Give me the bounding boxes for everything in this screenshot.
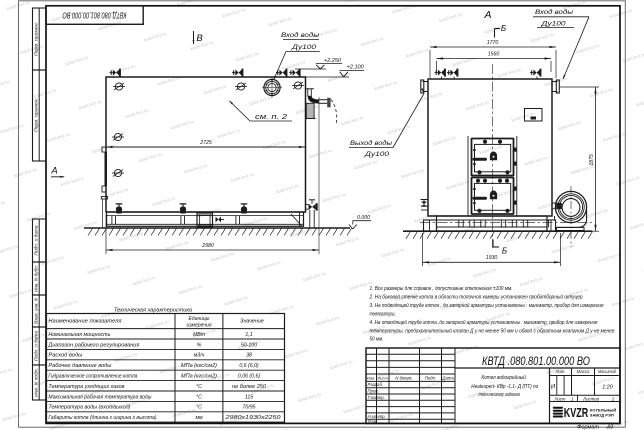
- svg-text:Подп. и дата: Подп. и дата: [33, 225, 38, 256]
- svg-text:Дата: Дата: [442, 376, 455, 381]
- svg-text:Масштаб: Масштаб: [598, 369, 617, 374]
- svg-text:МПа (кгс/см2): МПа (кгс/см2): [181, 374, 217, 380]
- svg-text:N докум.: N докум.: [395, 376, 412, 381]
- svg-text:Единицы: Единицы: [189, 316, 210, 322]
- svg-text:2980х1930х2250: 2980х1930х2250: [224, 415, 281, 421]
- svg-text:4. На отводящей трубе котла ,: 4. На отводящей трубе котла ,до запорной…: [370, 319, 598, 326]
- svg-text:+2.100: +2.100: [347, 65, 364, 71]
- svg-text:1,1: 1,1: [245, 332, 252, 338]
- svg-text:Температура воды (вход/выход): Температура воды (вход/выход): [48, 405, 130, 411]
- svg-text:1560: 1560: [488, 51, 500, 57]
- svg-text:0,6 (6,0): 0,6 (6,0): [239, 363, 259, 369]
- svg-text:см. п. 2: см. п. 2: [255, 114, 287, 121]
- svg-text:А3: А3: [606, 425, 613, 430]
- svg-text:Лист: Лист: [377, 376, 389, 381]
- svg-text:А: А: [50, 166, 57, 177]
- svg-text:1:20: 1:20: [602, 385, 613, 391]
- svg-text:А: А: [483, 9, 491, 21]
- svg-text:Вход воды: Вход воды: [535, 8, 573, 16]
- svg-text:не более 250: не более 250: [232, 384, 266, 390]
- svg-text:1. Все размеры для справок ,: 1. Все размеры для справок , допустимые …: [370, 286, 513, 292]
- svg-text:Значение: Значение: [240, 319, 264, 325]
- svg-text:Техническая характеристика: Техническая характеристика: [114, 307, 192, 313]
- svg-text:KVZR: KVZR: [564, 406, 589, 420]
- svg-text:В: В: [196, 33, 203, 44]
- svg-text:115: 115: [245, 394, 253, 400]
- svg-text:50-100: 50-100: [241, 342, 257, 348]
- svg-text:Масса: Масса: [577, 369, 590, 374]
- svg-text:Ду100: Ду100: [364, 151, 389, 158]
- svg-text:ЗАВОД РЭП: ЗАВОД РЭП: [590, 413, 614, 418]
- svg-text:Подп. и дата: Подп. и дата: [33, 330, 38, 361]
- svg-text:Выход воды: Выход воды: [350, 139, 392, 147]
- svg-text:°С: °С: [196, 384, 202, 390]
- svg-text:°С: °С: [196, 405, 202, 411]
- svg-text:Вход воды: Вход воды: [281, 31, 319, 39]
- svg-text:температуры.: температуры.: [370, 311, 396, 317]
- svg-text:КВТД.080.801.00.000 ВО: КВТД.080.801.00.000 ВО: [63, 11, 127, 20]
- svg-text:38: 38: [246, 353, 252, 359]
- svg-text:Расход воды: Расход воды: [48, 353, 82, 359]
- svg-text:м3/ч: м3/ч: [194, 353, 205, 359]
- svg-text:Наименование показателя: Наименование показателя: [48, 319, 121, 325]
- svg-text:Листов: Листов: [582, 396, 599, 401]
- svg-text:Б: Б: [501, 24, 506, 33]
- svg-text:Диапазон рабочего регулировани: Диапазон рабочего регулирования: [47, 342, 139, 348]
- svg-text:0,06 (0,6): 0,06 (0,6): [238, 374, 260, 380]
- svg-text:Изм.: Изм.: [367, 376, 376, 381]
- svg-text:Разраб.: Разраб.: [368, 382, 384, 387]
- svg-text:Лист: Лист: [553, 396, 565, 401]
- svg-text:Пров.: Пров.: [368, 389, 379, 394]
- svg-text:Формат: Формат: [577, 425, 599, 430]
- svg-text:Ду100: Ду100: [540, 21, 565, 28]
- svg-text:Рабочее давление воды: Рабочее давление воды: [48, 363, 111, 369]
- svg-text:1930: 1930: [486, 255, 498, 261]
- svg-text:+2.250: +2.250: [324, 58, 341, 64]
- svg-text:50 мм.: 50 мм.: [370, 337, 384, 343]
- svg-text:Инв. N дубл.: Инв. N дубл.: [33, 265, 38, 292]
- svg-text:Взам. инв. N: Взам. инв. N: [33, 297, 38, 324]
- svg-text:мм: мм: [195, 415, 203, 421]
- svg-text:2980: 2980: [201, 243, 214, 249]
- svg-text:Ду100: Ду100: [291, 44, 316, 51]
- svg-text:температуры, предохранительный: температуры, предохранительный клапан Д …: [370, 327, 615, 334]
- svg-text:70/95: 70/95: [243, 405, 256, 411]
- svg-text:Инв. N подл.: Инв. N подл.: [33, 368, 38, 397]
- svg-text:Максимальная рабочая температу: Максимальная рабочая температура воды: [48, 394, 151, 400]
- svg-text:Перв. примен.: Перв. примен.: [33, 22, 38, 56]
- svg-text:МВт: МВт: [193, 332, 206, 338]
- svg-text:техническому заданию: техническому заданию: [478, 392, 520, 398]
- svg-text:КВТД .080.801.00.000 ВО: КВТД .080.801.00.000 ВО: [482, 356, 590, 368]
- svg-text:Heatexpert- КВр -1,1- Д (ПТ): Heatexpert- КВр -1,1- Д (ПТ) по: [471, 384, 538, 390]
- svg-text:Утв.: Утв.: [368, 419, 378, 424]
- svg-text:3. На подводящей трубе котла: 3. На подводящей трубе котла , до запорн…: [370, 302, 604, 309]
- svg-text:2. На боковой стенке котла в: 2. На боковой стенке котла в области топ…: [369, 293, 583, 300]
- svg-text:Подп.: Подп.: [425, 376, 436, 381]
- svg-text:1875: 1875: [589, 154, 595, 166]
- svg-text:измерения: измерения: [186, 322, 211, 328]
- svg-text:Б: Б: [502, 247, 507, 256]
- svg-text:МПа (кгс/см2): МПа (кгс/см2): [181, 363, 217, 369]
- svg-text:Т.контр.: Т.контр.: [368, 395, 385, 400]
- svg-text:Температура уходящих газов: Температура уходящих газов: [48, 384, 124, 390]
- svg-text:0.000: 0.000: [357, 215, 370, 221]
- svg-text:Лит.: Лит.: [554, 369, 565, 374]
- svg-text:Котел водогрейный: Котел водогрейный: [481, 374, 526, 381]
- svg-text:Габариты котла (длинна х ширин: Габариты котла (длинна х ширина х высота…: [48, 415, 156, 421]
- svg-text:Номинальная мощность: Номинальная мощность: [48, 332, 110, 338]
- svg-text:%: %: [197, 342, 202, 348]
- svg-text:1770: 1770: [487, 40, 499, 46]
- svg-text:°С: °С: [196, 394, 202, 400]
- svg-text:2725: 2725: [199, 140, 212, 146]
- svg-text:Перв. примен.: Перв. примен.: [33, 98, 38, 132]
- svg-text:И: И: [551, 385, 556, 391]
- svg-text:Гидравлическое сопротивление к: Гидравлическое сопротивление котла: [48, 374, 137, 380]
